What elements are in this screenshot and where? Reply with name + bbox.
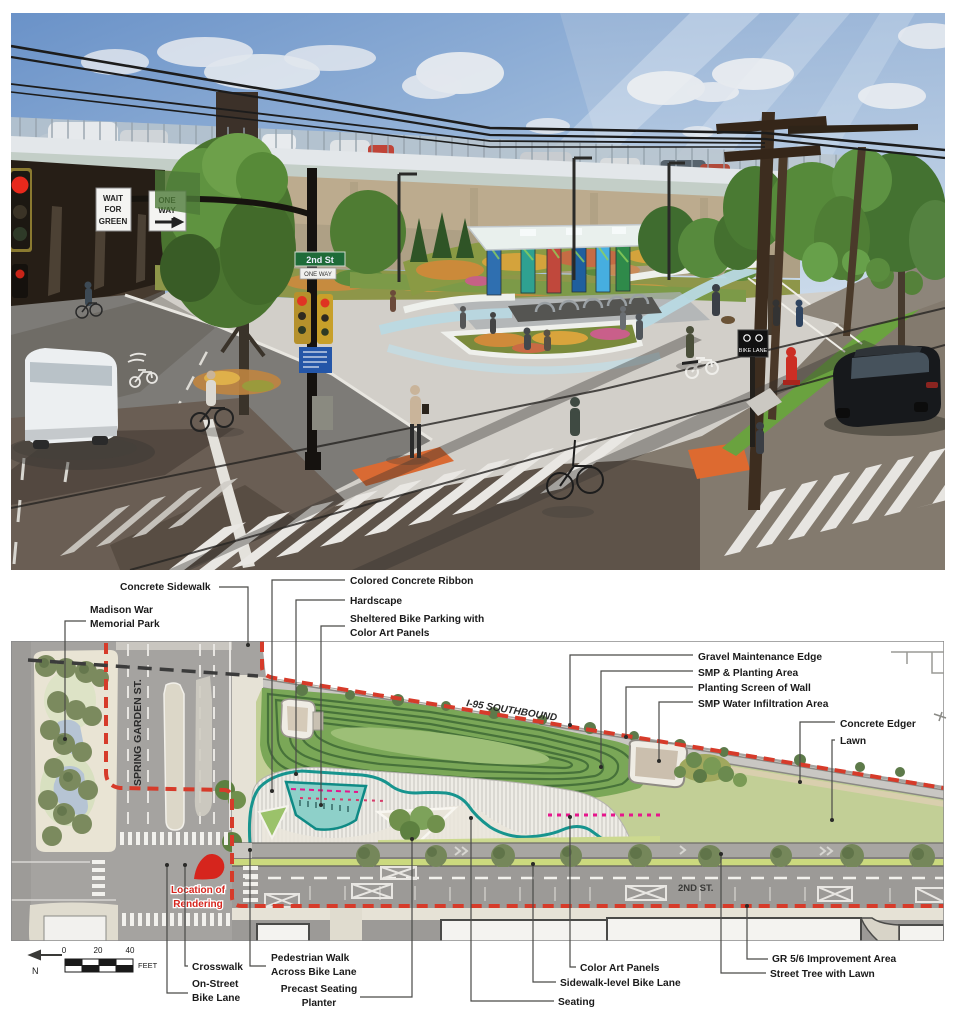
svg-text:Madison War: Madison War — [90, 605, 153, 616]
svg-text:Concrete Edger: Concrete Edger — [840, 719, 916, 730]
svg-text:WAIT: WAIT — [103, 194, 123, 203]
svg-text:GREEN: GREEN — [99, 217, 128, 226]
svg-text:Location of: Location of — [171, 885, 226, 896]
svg-text:Street Tree with Lawn: Street Tree with Lawn — [770, 969, 875, 980]
svg-text:Pedestrian Walk: Pedestrian Walk — [271, 953, 350, 964]
svg-text:Lawn: Lawn — [840, 736, 866, 747]
svg-text:On-Street: On-Street — [192, 979, 239, 990]
svg-text:Across Bike Lane: Across Bike Lane — [271, 967, 357, 978]
svg-text:Gravel Maintenance Edge: Gravel Maintenance Edge — [698, 652, 822, 663]
svg-text:Bike Lane: Bike Lane — [192, 993, 240, 1004]
svg-text:Hardscape: Hardscape — [350, 596, 402, 607]
svg-text:Rendering: Rendering — [173, 899, 222, 910]
svg-text:Seating: Seating — [558, 997, 595, 1008]
svg-text:Sidewalk-level Bike Lane: Sidewalk-level Bike Lane — [560, 978, 681, 989]
svg-text:BIKE LANE: BIKE LANE — [739, 348, 768, 354]
svg-text:Memorial Park: Memorial Park — [90, 619, 160, 630]
svg-text:2nd St: 2nd St — [306, 255, 334, 265]
svg-text:SMP Water Infiltration Area: SMP Water Infiltration Area — [698, 699, 829, 710]
svg-text:Precast Seating: Precast Seating — [281, 984, 357, 995]
svg-text:Planting Screen of Wall: Planting Screen of Wall — [698, 683, 811, 694]
svg-text:GR 5/6 Improvement Area: GR 5/6 Improvement Area — [772, 954, 897, 965]
svg-text:Sheltered Bike Parking with: Sheltered Bike Parking with — [350, 614, 484, 625]
svg-text:SPRING GARDEN ST.: SPRING GARDEN ST. — [132, 679, 144, 786]
svg-text:Crosswalk: Crosswalk — [192, 962, 243, 973]
svg-text:SMP & Planting Area: SMP & Planting Area — [698, 668, 799, 679]
svg-text:Colored Concrete Ribbon: Colored Concrete Ribbon — [350, 576, 473, 587]
svg-text:N: N — [32, 966, 39, 976]
svg-text:Color Art Panels: Color Art Panels — [580, 963, 660, 974]
svg-text:ONE WAY: ONE WAY — [304, 272, 332, 278]
svg-text:FOR: FOR — [105, 205, 122, 214]
svg-text:Planter: Planter — [302, 998, 337, 1009]
svg-text:20: 20 — [94, 946, 103, 955]
svg-text:40: 40 — [126, 946, 135, 955]
svg-text:FEET: FEET — [138, 961, 158, 970]
svg-text:Concrete Sidewalk: Concrete Sidewalk — [120, 582, 211, 593]
svg-text:2ND ST.: 2ND ST. — [678, 883, 713, 894]
svg-text:Color Art Panels: Color Art Panels — [350, 628, 430, 639]
svg-text:0: 0 — [62, 946, 67, 955]
